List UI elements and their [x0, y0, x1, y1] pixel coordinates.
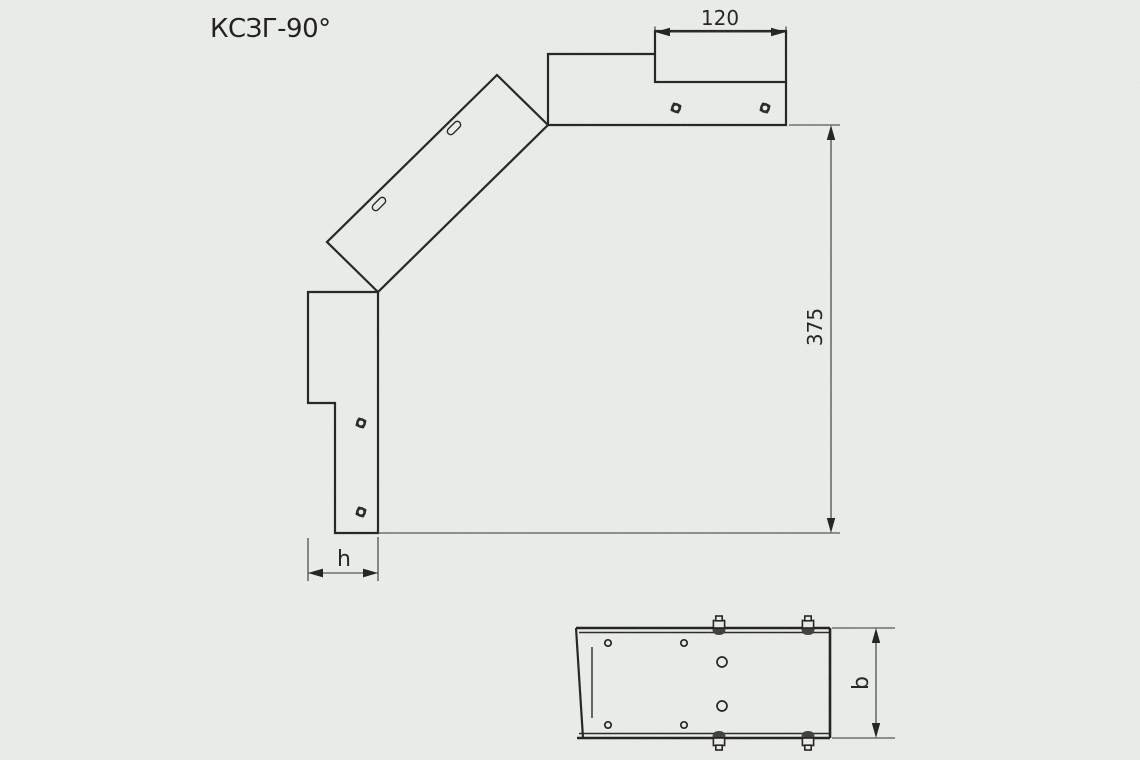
drawing-canvas: 120 375 h: [0, 0, 1140, 760]
dim-b-label: b: [849, 676, 874, 690]
dim-h-label: h: [337, 547, 351, 572]
technical-drawing: 120 375 h: [0, 0, 1140, 760]
dim-120-label: 120: [701, 6, 739, 30]
dim-375-label: 375: [803, 308, 827, 346]
paper-background: [0, 0, 1140, 760]
drawing-title: КСЗГ-90°: [210, 14, 331, 44]
